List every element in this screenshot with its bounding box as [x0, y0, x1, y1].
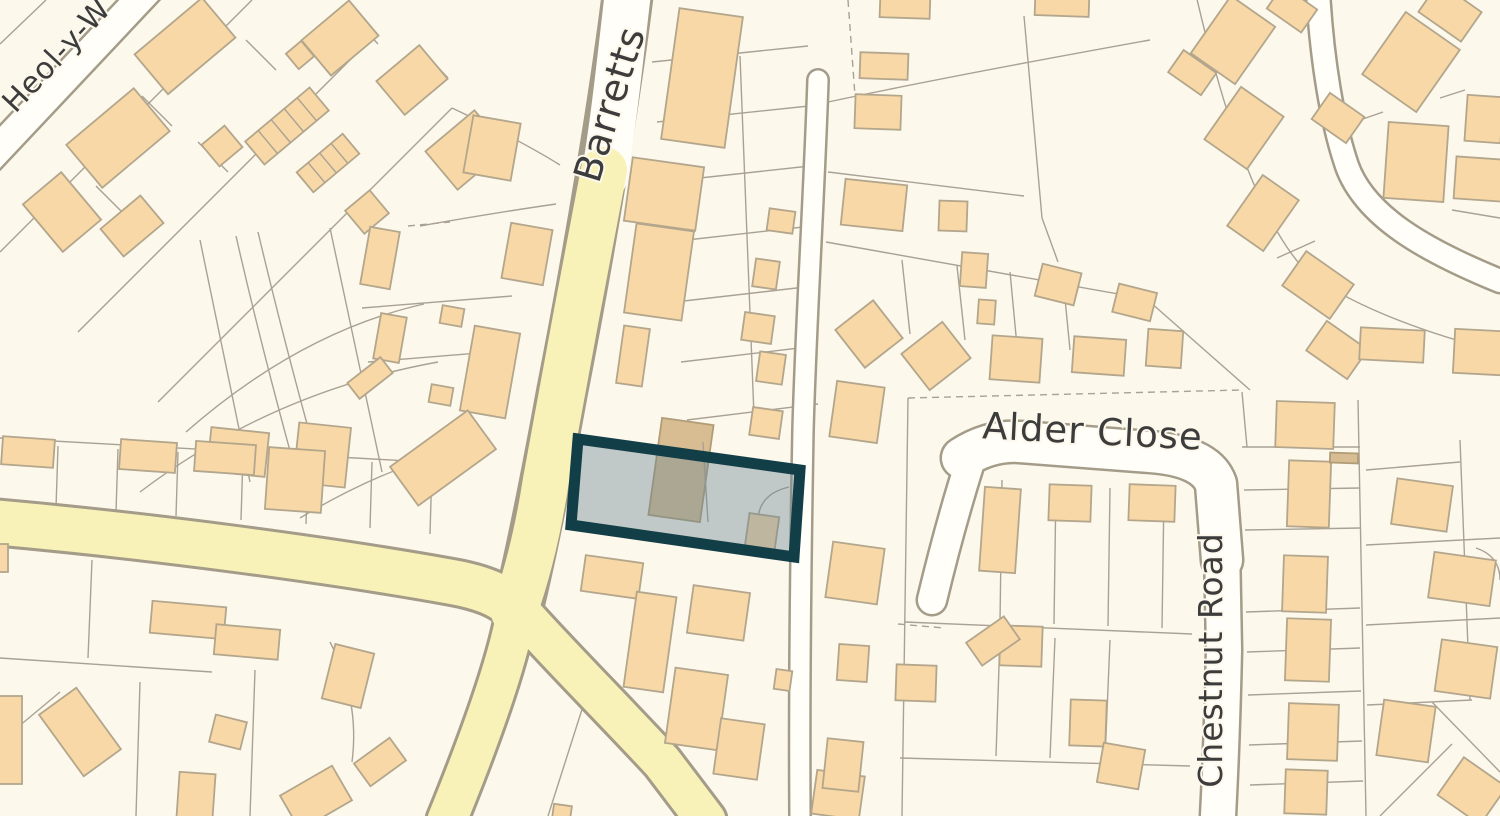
building	[880, 0, 931, 19]
map-canvas[interactable]: Barretts Alder Close Chestnut Road Heol-…	[0, 0, 1500, 816]
parcel-line	[675, 286, 814, 302]
building	[347, 357, 392, 399]
parcel-line	[136, 682, 140, 816]
building	[624, 157, 704, 230]
building	[581, 555, 643, 599]
parcel-line	[420, 204, 556, 226]
parcel-line	[78, 42, 368, 332]
building	[345, 190, 389, 234]
building	[825, 542, 884, 605]
building	[1428, 552, 1496, 606]
building	[938, 201, 967, 232]
building	[841, 179, 907, 231]
building	[713, 718, 764, 780]
building	[990, 335, 1043, 382]
building	[1204, 87, 1283, 169]
parcel-line	[902, 260, 910, 334]
building	[0, 696, 22, 784]
parcel-line	[902, 398, 908, 816]
selected-plot-boundary[interactable]	[571, 439, 800, 557]
building	[1227, 175, 1299, 251]
parcel-line	[1452, 210, 1500, 218]
building	[119, 439, 177, 473]
building	[0, 544, 8, 572]
building	[1306, 321, 1368, 379]
building	[960, 252, 988, 288]
building	[741, 312, 775, 344]
parcel-line	[246, 40, 276, 70]
parcel-line	[826, 242, 1152, 300]
building	[440, 305, 465, 327]
parcel-line	[1366, 618, 1500, 625]
parcel-line	[848, 0, 855, 96]
building	[1048, 484, 1091, 521]
building	[376, 45, 447, 115]
building	[135, 0, 236, 94]
building	[835, 300, 902, 367]
building	[752, 258, 780, 289]
building	[977, 299, 996, 324]
building	[460, 326, 520, 419]
building	[66, 88, 169, 187]
parcel-line	[158, 108, 452, 402]
building	[1391, 478, 1453, 531]
building	[1035, 0, 1090, 17]
building	[854, 94, 901, 130]
building	[1035, 264, 1082, 306]
map-viewport[interactable]: Barretts Alder Close Chestnut Road Heol-…	[0, 0, 1500, 816]
building	[1330, 453, 1358, 464]
building	[661, 8, 743, 148]
building	[1128, 484, 1175, 522]
building	[829, 381, 884, 443]
building	[1438, 757, 1500, 816]
building	[1112, 284, 1157, 322]
parcel-line	[88, 560, 92, 658]
parcel-line	[56, 446, 58, 508]
road-southwest	[447, 614, 516, 816]
road-west	[0, 522, 514, 608]
building	[360, 227, 400, 289]
building	[1435, 639, 1498, 698]
building	[1282, 555, 1328, 613]
building	[1376, 700, 1435, 763]
building	[624, 592, 677, 693]
building	[463, 115, 520, 180]
building	[1453, 329, 1500, 375]
building	[245, 88, 329, 165]
building	[1359, 327, 1425, 362]
building	[822, 738, 863, 791]
building	[774, 669, 793, 691]
building	[895, 664, 936, 701]
building	[23, 172, 101, 252]
parcel-line	[250, 670, 255, 816]
parcel-line	[362, 296, 512, 308]
parcel-line	[0, 0, 46, 44]
building	[1072, 336, 1126, 376]
building	[1284, 769, 1328, 814]
parcel-line	[548, 700, 585, 816]
parcel-line	[0, 658, 212, 672]
parcel-line	[1366, 462, 1460, 470]
parcel-line	[1366, 538, 1500, 545]
building	[1464, 95, 1500, 143]
building	[194, 441, 256, 475]
parcel-line	[1108, 488, 1110, 626]
building	[209, 715, 247, 750]
building	[837, 644, 869, 682]
building	[39, 688, 121, 777]
parcel-line	[1024, 16, 1042, 218]
building	[176, 772, 215, 816]
building	[214, 624, 280, 659]
building	[749, 407, 783, 439]
building	[101, 195, 164, 256]
parcel-line	[905, 622, 1192, 634]
building	[390, 410, 496, 505]
building	[687, 585, 750, 640]
parcel-line	[1242, 392, 1247, 447]
parcel-line	[116, 449, 118, 512]
building	[860, 52, 909, 80]
building	[552, 804, 572, 816]
building	[1287, 460, 1331, 527]
building	[373, 313, 407, 363]
building	[501, 223, 552, 285]
building	[429, 384, 454, 406]
parcel-line	[1042, 218, 1058, 262]
building	[322, 644, 374, 708]
parcel-line	[1050, 638, 1055, 758]
parcel-line	[908, 390, 1242, 398]
building	[280, 766, 352, 816]
building	[1097, 743, 1145, 790]
building	[354, 738, 406, 787]
parcel-line	[740, 56, 754, 416]
building	[979, 487, 1021, 573]
building	[756, 351, 786, 384]
building	[202, 126, 243, 167]
building	[1454, 156, 1500, 201]
building	[767, 208, 796, 233]
building	[1383, 122, 1448, 202]
parcel-line	[900, 758, 1190, 766]
parcel-line	[1248, 691, 1361, 695]
building	[624, 223, 694, 320]
building	[1146, 329, 1183, 368]
parcel-line	[1245, 528, 1361, 530]
building	[1069, 699, 1107, 746]
building	[1285, 618, 1331, 681]
street-label-chestnut-road: Chestnut Road	[1191, 532, 1230, 787]
building	[1282, 251, 1354, 319]
building	[1275, 401, 1335, 449]
building	[301, 0, 378, 75]
building	[1287, 703, 1339, 761]
parcel-line	[1440, 90, 1465, 98]
building	[616, 325, 650, 386]
parcel-line	[370, 462, 372, 528]
building	[901, 322, 970, 390]
building	[1, 436, 55, 468]
parcel-line	[1010, 272, 1017, 346]
building	[265, 447, 325, 513]
